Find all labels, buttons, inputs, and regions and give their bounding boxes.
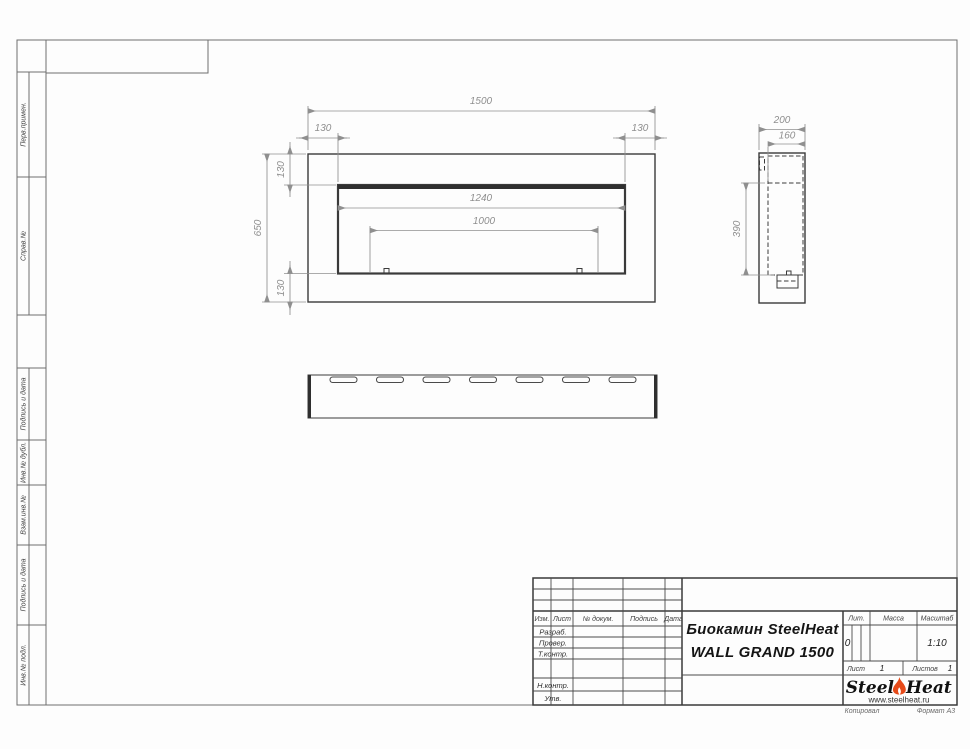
dim-side-inset: 160 [779, 131, 796, 142]
stamp-row-approved: Утв. [543, 694, 561, 703]
stamp-row-checked: Провер. [539, 639, 567, 648]
dim-front-left-offset: 130 [315, 123, 332, 134]
bottom-view [308, 375, 657, 418]
sidebar: Перв.примен. Справ.№ Подпись и дата Инв.… [17, 72, 46, 705]
burner-slot [377, 377, 404, 383]
logo-url: www.steelheat.ru [868, 696, 930, 705]
dim-side-depth: 200 [773, 115, 791, 126]
bottom-view-slots [330, 377, 636, 383]
side-view [759, 153, 805, 303]
stamp-row-ncontrol: Н.контр. [537, 681, 569, 690]
drawing-canvas: Перв.примен. Справ.№ Подпись и дата Инв.… [0, 0, 970, 749]
steelheat-logo: Steel Heat www.steelheat.ru [846, 677, 952, 705]
drawing-title-line1: Биокамин SteelHeat [686, 621, 839, 638]
sheet-footer: Копировал Формат А3 [845, 708, 956, 715]
sidebar-label-sprav-no: Справ.№ [21, 231, 28, 261]
dim-front-height: 650 [253, 219, 264, 236]
burner-slot [609, 377, 636, 383]
burner-slot [330, 377, 357, 383]
sidebar-label-inv-podl: Инв.№ подл. [20, 644, 28, 686]
flame-icon [893, 677, 906, 694]
dim-front-width: 1500 [470, 96, 493, 107]
dim-front-opening: 1240 [470, 193, 493, 204]
side-mount-bracket [760, 157, 765, 170]
footer-copied-label: Копировал [845, 708, 880, 715]
stamp-sheets-label: Листов [911, 666, 938, 673]
stamp-col-date: Дата [663, 616, 683, 623]
side-bottom-notch [787, 271, 792, 275]
stamp-col-sign: Подпись [630, 615, 658, 623]
bottom-body [308, 375, 657, 418]
front-view-dimensions: 1500 130 130 650 130 130 1240 [253, 96, 667, 315]
stamp-col-izm: Изм. [535, 616, 550, 623]
side-hidden-box [768, 156, 803, 275]
front-view [308, 154, 655, 302]
sidebar-label-perv-primen: Перв.примен. [21, 102, 28, 147]
stamp-scale-value: 1:10 [927, 638, 947, 649]
stamp-col-list: Лист [552, 616, 571, 623]
burner-slot [470, 377, 497, 383]
sidebar-label-inv-dubl: Инв.№ дубл. [20, 442, 28, 483]
drawing-sheet: Перв.примен. Справ.№ Подпись и дата Инв.… [0, 0, 970, 749]
dim-side-opening-height: 390 [732, 220, 743, 237]
sidebar-label-podpis-data-2: Подпись и дата [20, 558, 28, 611]
frame-border [17, 40, 957, 705]
stamp-mass-label: Масса [883, 616, 904, 623]
stamp-col-doc: № докум. [583, 615, 614, 623]
stamp-sheets-value: 1 [948, 663, 953, 673]
burner-slot [516, 377, 543, 383]
stamp-row-tcontrol: Т.контр. [538, 650, 568, 659]
sidebar-label-podpis-data-1: Подпись и дата [20, 377, 28, 430]
stamp-lit-label: Лит. [847, 616, 864, 623]
drawing-title-line2: WALL GRAND 1500 [691, 644, 835, 661]
stamp-scale-label: Масштаб [921, 615, 955, 623]
top-left-reference-box [46, 40, 208, 73]
front-opening-top-bar [338, 185, 625, 189]
dim-front-bottom-offset: 130 [276, 279, 287, 296]
sheet-frame [17, 40, 957, 705]
sidebar-label-vzam-inv: Взам.инв.№ [21, 495, 28, 535]
stamp-row-developed: Разраб. [539, 628, 566, 637]
stamp-lit-value: 0 [845, 638, 851, 649]
dim-front-burner: 1000 [473, 216, 496, 227]
footer-format-label: Формат А3 [917, 708, 955, 715]
stamp-sheet-value: 1 [880, 663, 885, 673]
burner-slot [423, 377, 450, 383]
dim-front-top-offset: 130 [276, 161, 287, 178]
stamp-sheet-label: Лист [846, 666, 865, 673]
dim-front-right-offset: 130 [632, 123, 649, 134]
front-outer-body [308, 154, 655, 302]
burner-slot [563, 377, 590, 383]
